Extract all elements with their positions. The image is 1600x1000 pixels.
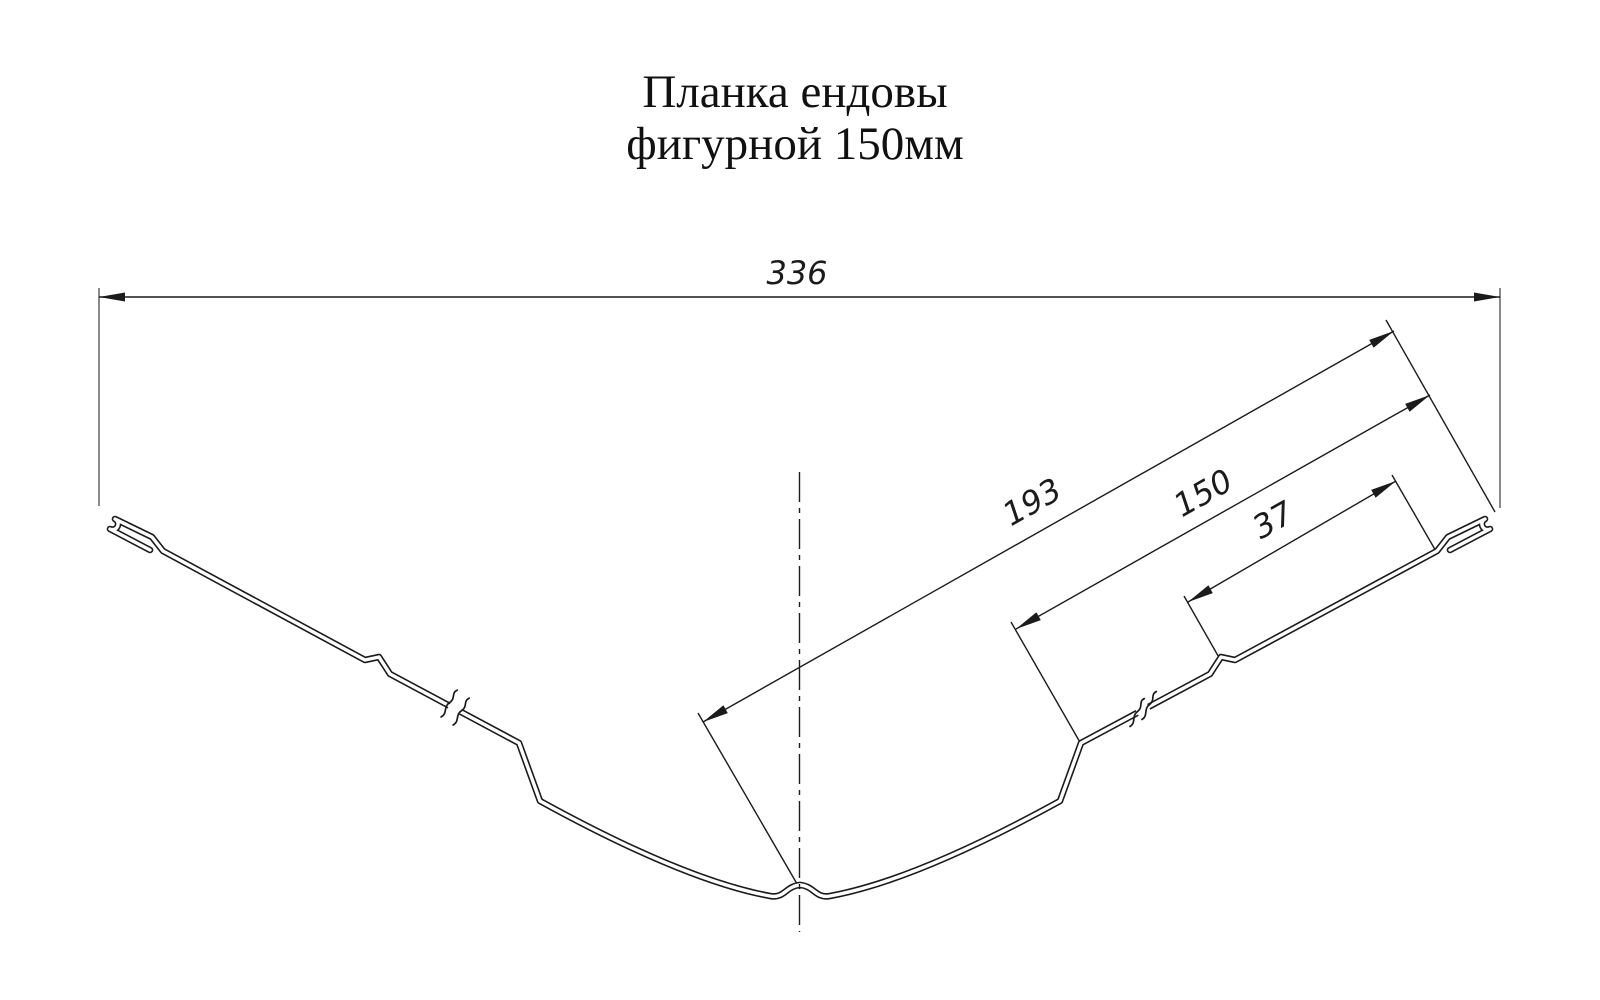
break-mark-right	[1130, 690, 1156, 728]
extension-line-37-left	[1184, 596, 1221, 661]
dim-label-150-group: 150	[1167, 461, 1239, 524]
arrowhead-336-right	[1474, 293, 1500, 302]
arrowhead-336-left	[99, 293, 125, 302]
arrowhead-150-right	[1405, 395, 1430, 412]
drawing-title-line-2: фигурной 150мм	[626, 118, 963, 170]
drawing-title-line-1: Планка ендовы	[642, 66, 947, 118]
extension-line-150-left	[1011, 622, 1081, 744]
dim-label-193-group: 193	[996, 470, 1068, 533]
break-mark-left	[441, 688, 469, 727]
dimension-line-150	[1016, 395, 1430, 629]
arrowhead-37-left	[1188, 585, 1213, 602]
dim-label-37: 37	[1246, 493, 1301, 546]
arrowhead-193-left	[703, 705, 728, 722]
extension-line-193-left	[698, 713, 800, 889]
arrowhead-37-right	[1371, 481, 1396, 498]
arrowhead-150-left	[1016, 612, 1041, 629]
extension-line-37-right	[1392, 475, 1437, 553]
extension-line-right-end	[1386, 320, 1495, 512]
dim-label-37-group: 37	[1246, 493, 1301, 546]
dim-label-193: 193	[996, 470, 1068, 533]
dim-label-150: 150	[1167, 461, 1239, 524]
drawing-page: Планка ендовы фигурной 150мм 336 193 150…	[0, 0, 1600, 1000]
dim-label-336: 336	[766, 254, 827, 292]
technical-drawing: Планка ендовы фигурной 150мм 336 193 150…	[0, 0, 1600, 1000]
arrowhead-193-right	[1369, 331, 1394, 348]
